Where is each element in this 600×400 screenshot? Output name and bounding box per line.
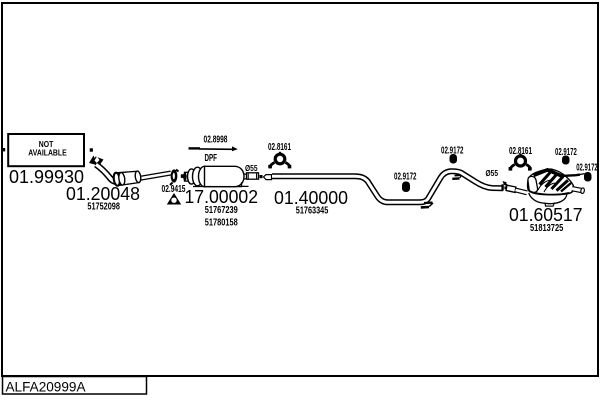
svg-text:DPF: DPF <box>205 153 218 164</box>
svg-text:Ø55: Ø55 <box>245 163 258 173</box>
svg-text:51813725: 51813725 <box>530 222 563 234</box>
svg-text:51767239: 51767239 <box>205 204 238 216</box>
svg-text:02.9172: 02.9172 <box>394 172 417 183</box>
svg-text:Ø55: Ø55 <box>486 168 499 178</box>
svg-text:51752098: 51752098 <box>87 201 120 213</box>
svg-text:AVAILABLE: AVAILABLE <box>28 149 67 158</box>
svg-text:02.9415: 02.9415 <box>162 184 186 195</box>
svg-text:51780158: 51780158 <box>205 217 238 229</box>
svg-text:02.8161: 02.8161 <box>268 142 291 153</box>
svg-text:51763345: 51763345 <box>296 204 329 216</box>
svg-text:02.8998: 02.8998 <box>204 135 228 146</box>
svg-text:02.9172: 02.9172 <box>576 163 598 174</box>
svg-text:ALFA20999A: ALFA20999A <box>6 379 87 395</box>
